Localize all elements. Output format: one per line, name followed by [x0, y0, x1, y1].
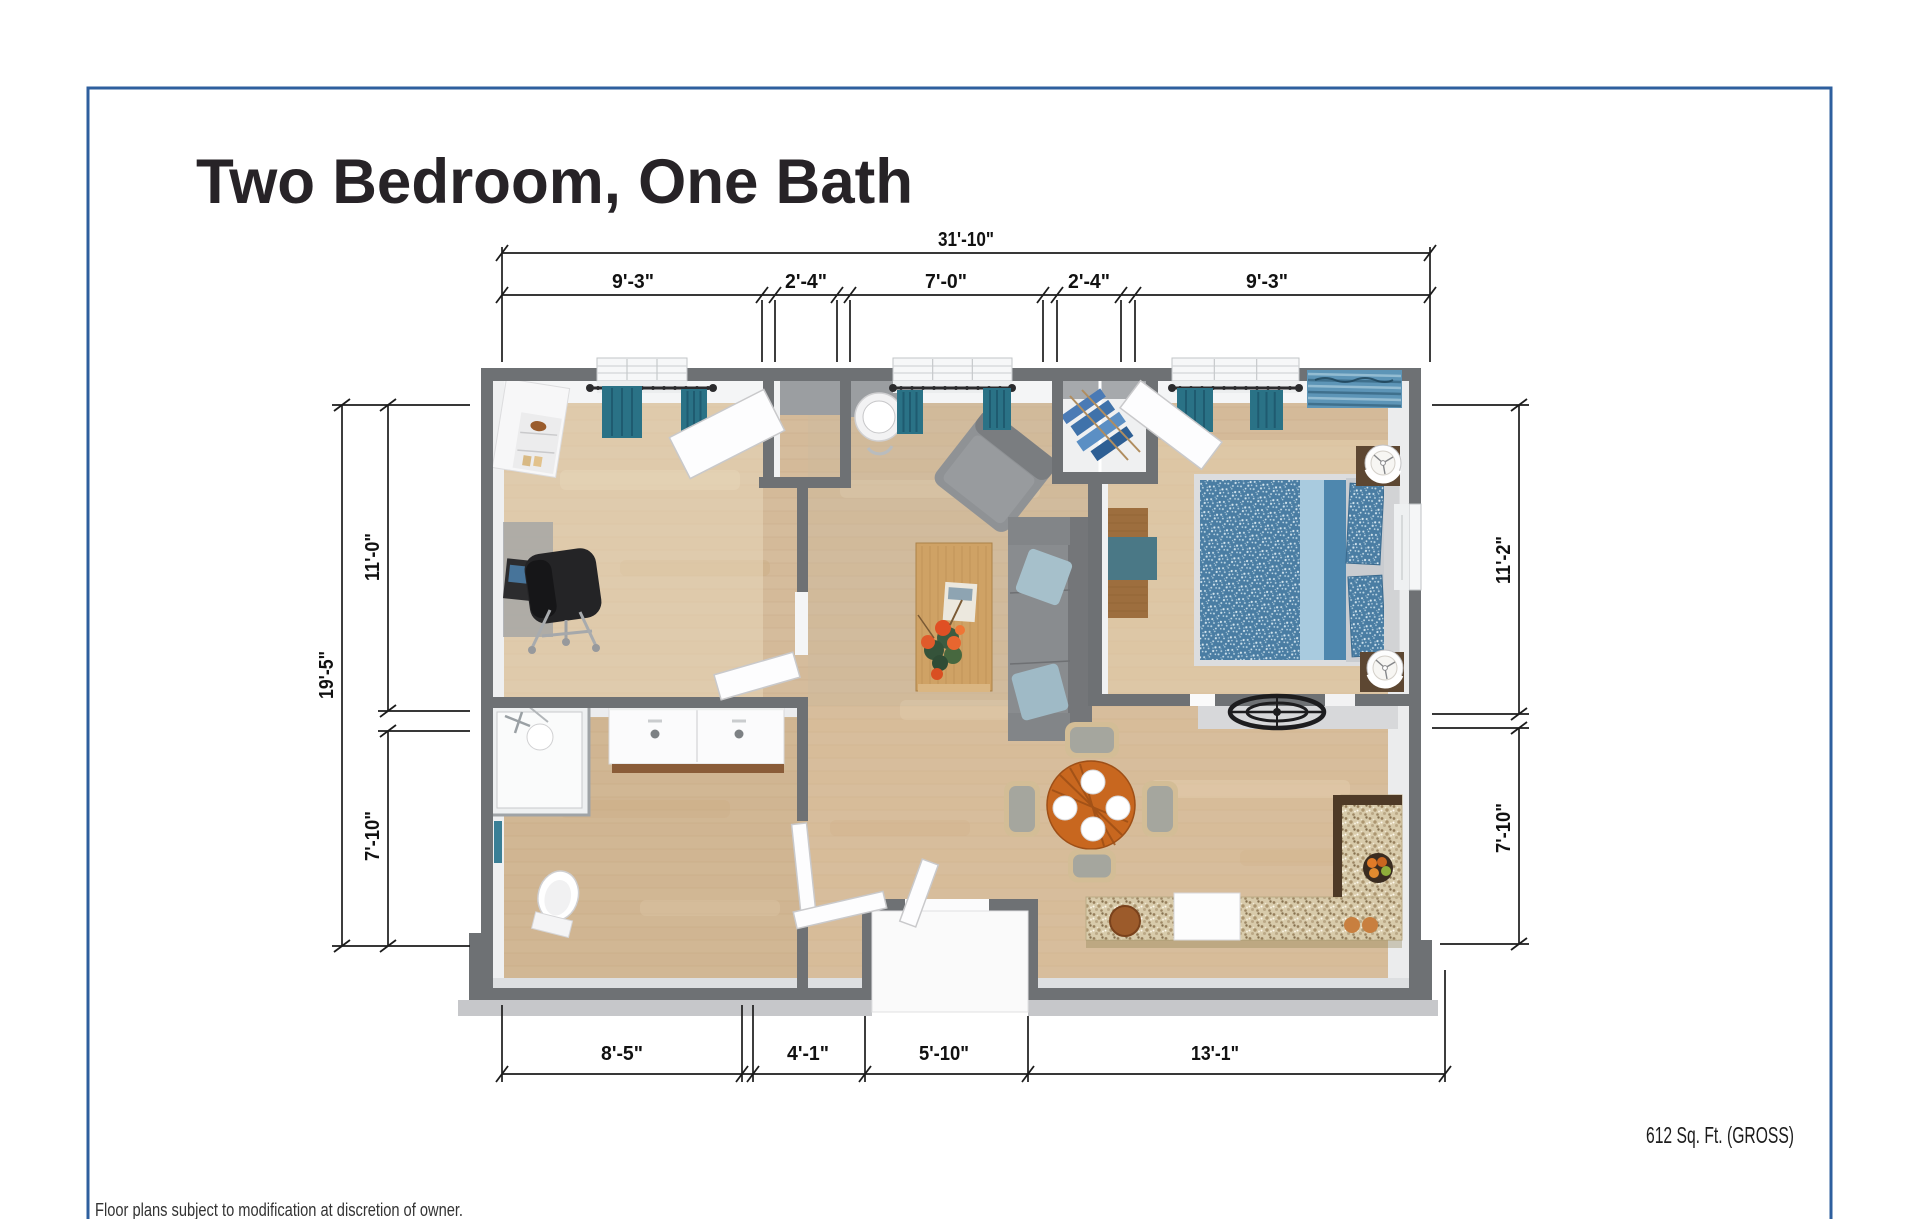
svg-text:13'-1": 13'-1" — [1191, 1043, 1239, 1065]
svg-text:5'-10": 5'-10" — [919, 1043, 969, 1065]
svg-text:8'-5": 8'-5" — [601, 1043, 643, 1065]
svg-text:11'-2": 11'-2" — [1493, 536, 1515, 584]
svg-text:31'-10": 31'-10" — [938, 229, 994, 251]
svg-text:11'-0": 11'-0" — [362, 533, 384, 581]
svg-text:612 Sq. Ft. (GROSS): 612 Sq. Ft. (GROSS) — [1646, 1122, 1794, 1148]
svg-text:9'-3": 9'-3" — [1246, 271, 1288, 293]
svg-text:19'-5": 19'-5" — [316, 651, 338, 699]
svg-text:2'-4": 2'-4" — [1068, 271, 1110, 293]
svg-text:9'-3": 9'-3" — [612, 271, 654, 293]
svg-text:Floor plans subject to modific: Floor plans subject to modification at d… — [95, 1200, 463, 1219]
svg-text:7'-10": 7'-10" — [1493, 803, 1515, 853]
svg-text:Two Bedroom, One Bath: Two Bedroom, One Bath — [196, 147, 913, 217]
svg-text:2'-4": 2'-4" — [785, 271, 827, 293]
svg-text:4'-1": 4'-1" — [787, 1043, 829, 1065]
svg-text:7'-0": 7'-0" — [925, 271, 967, 293]
svg-text:7'-10": 7'-10" — [362, 811, 384, 861]
